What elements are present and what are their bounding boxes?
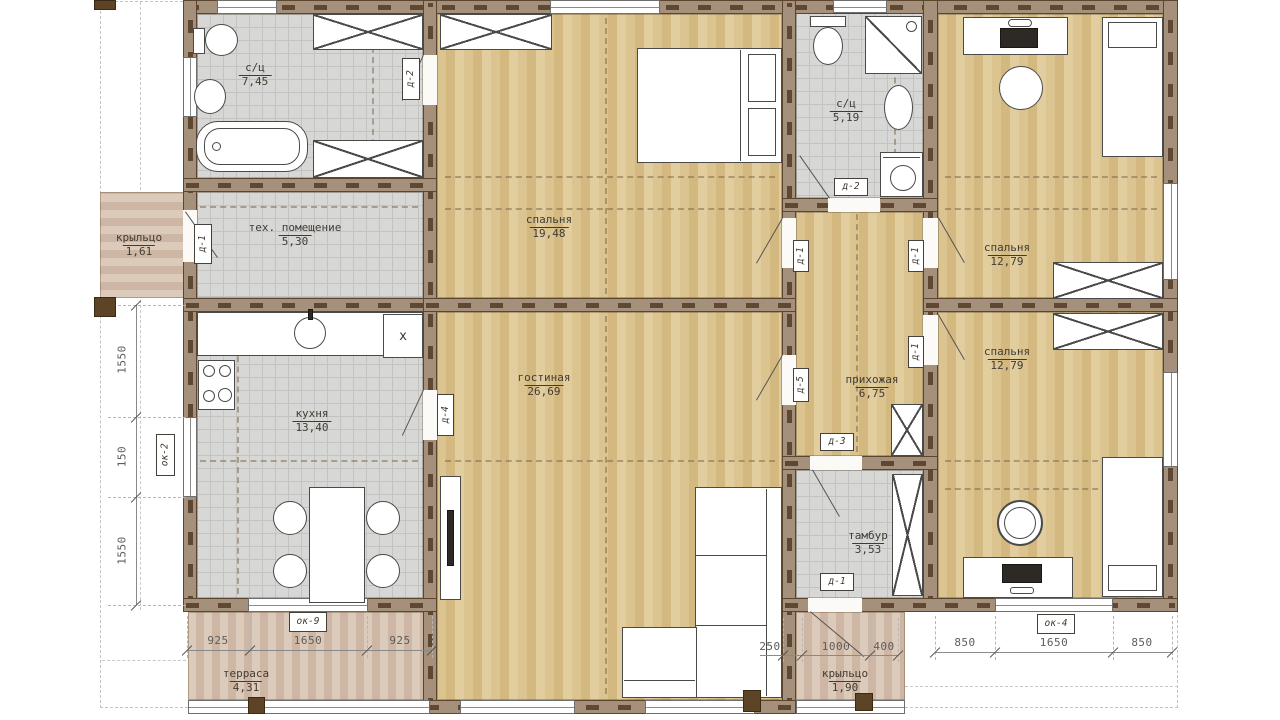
beam-line: [237, 316, 239, 594]
door-tag-d3: д-3: [820, 433, 854, 451]
wall-bedroom-living: [423, 298, 796, 312]
beam-line: [856, 214, 858, 452]
sofa-icon: [695, 487, 782, 698]
chair-icon: [999, 66, 1043, 110]
label-bedroom-main: спальня 19,48: [526, 214, 572, 240]
chair-icon: [273, 501, 307, 535]
dim-ext: [108, 497, 186, 498]
room-area: 5,19: [830, 111, 863, 125]
window: [183, 57, 197, 117]
fridge-icon: x: [383, 314, 423, 358]
room-area: 6,75: [856, 387, 889, 401]
window: [217, 0, 277, 14]
dim-label: 400: [864, 640, 904, 653]
window: [1163, 183, 1178, 280]
wardrobe-icon: [313, 140, 423, 178]
label-terrace: терраса 4,31: [223, 668, 269, 694]
dim-label: 1550: [116, 527, 129, 575]
bed-line: [740, 50, 741, 161]
wardrobe-icon: [891, 404, 923, 456]
post: [94, 0, 116, 10]
beam-line: [605, 316, 607, 694]
sofa-line: [766, 489, 767, 696]
room-name: гостиная: [518, 372, 571, 385]
dim-label: 150: [116, 433, 129, 481]
dim-ext: [108, 605, 186, 606]
door-gap-entry: [808, 598, 862, 612]
door-gap-bedroom-bottom: [923, 315, 938, 365]
door-tag-d5: д-5: [793, 368, 809, 402]
label-bedroom-top: спальня 12,79: [984, 242, 1030, 268]
toilet-icon: [810, 16, 846, 27]
plant-pot-icon: [997, 500, 1043, 546]
closet-icon: [892, 474, 923, 596]
overhang-line: [140, 2, 141, 190]
room-name: кухня: [295, 408, 328, 421]
dim-ext: [432, 616, 433, 658]
beam-line: [200, 206, 418, 208]
sofa-line: [696, 625, 766, 626]
overhang-line: [140, 300, 141, 610]
door-tag-d4: д-4: [437, 394, 454, 436]
room-name: тех. помещение: [249, 222, 342, 235]
dim-ext: [1172, 616, 1173, 660]
room-name: крыльцо: [822, 668, 868, 681]
tap-icon: [308, 309, 313, 320]
room-area: 12,79: [987, 359, 1026, 373]
post: [743, 690, 761, 712]
window: [550, 0, 660, 14]
dim-label: 925: [188, 634, 248, 647]
door-gap-bath2: [828, 198, 880, 212]
sofa-line: [696, 555, 766, 556]
dim-label: 1650: [278, 634, 338, 647]
beam-line: [445, 460, 775, 462]
beam-line: [445, 208, 775, 210]
room-area: 5,30: [279, 235, 312, 249]
label-hallway: прихожая 6,75: [846, 374, 899, 400]
door-tag-d1: д-1: [793, 240, 809, 272]
label-porch-left: крыльцо 1,61: [116, 232, 162, 258]
dim-label: 1000: [816, 640, 856, 653]
burner-icon: [218, 388, 232, 402]
door-tag-d2: д-2: [834, 178, 868, 196]
label-living: гостиная 26,69: [518, 372, 571, 398]
toilet-icon: [193, 28, 205, 54]
window: [645, 700, 755, 714]
chair-icon: [366, 554, 400, 588]
wardrobe-icon: [1053, 262, 1163, 299]
dim-label: 250: [750, 640, 790, 653]
beam-line: [945, 208, 1157, 210]
pillow-icon: [1108, 22, 1157, 48]
room-area: 1,61: [123, 245, 156, 259]
laptop-icon: [1002, 564, 1042, 583]
dim-ext: [250, 616, 251, 658]
sink-icon: [884, 85, 913, 130]
door-tag-d1: д-1: [194, 224, 212, 264]
dim-line-terrace: [187, 650, 432, 651]
printer-lid: [1008, 19, 1032, 27]
door-tag-d1: д-1: [820, 573, 854, 591]
dim-label: 850: [935, 636, 995, 649]
sofa-line: [624, 680, 695, 681]
wardrobe-icon: [1053, 313, 1163, 350]
dim-label: 1650: [1024, 636, 1084, 649]
room-area: 12,79: [987, 255, 1026, 269]
chair-icon: [366, 501, 400, 535]
dim-label: 925: [370, 634, 430, 647]
terrace-edge: [188, 700, 430, 714]
toilet-icon: [205, 24, 238, 56]
wardrobe-icon: [440, 14, 552, 50]
door-tag-d1: д-1: [908, 240, 924, 272]
fridge-label: x: [399, 329, 407, 344]
burner-icon: [219, 365, 231, 377]
wall-top: [183, 0, 1178, 14]
wall-bath1-tech: [183, 178, 437, 192]
room-name: тамбур: [848, 530, 888, 543]
dim-line-right: [935, 652, 1172, 653]
room-name: спальня: [984, 242, 1030, 255]
pillow-icon: [748, 54, 776, 102]
shower-icon: [865, 16, 922, 74]
room-name: крыльцо: [116, 232, 162, 245]
room-name: спальня: [984, 346, 1030, 359]
post: [94, 297, 116, 317]
room-name: терраса: [223, 668, 269, 681]
pillow-icon: [748, 108, 776, 156]
overhang-line: [905, 686, 1178, 687]
label-bedroom-bottom: спальня 12,79: [984, 346, 1030, 372]
burner-icon: [203, 365, 215, 377]
dim-label: 850: [1112, 636, 1172, 649]
window: [1163, 372, 1178, 467]
pillow-icon: [1108, 565, 1157, 591]
label-porch-bottom: крыльцо 1,90: [822, 668, 868, 694]
drain-icon: [212, 142, 221, 151]
window: [833, 0, 887, 13]
dim-line-left: [136, 305, 137, 605]
room-name: с/ц: [245, 62, 265, 75]
burner-icon: [203, 390, 215, 402]
post: [855, 693, 873, 711]
window-ok4: [995, 598, 1113, 612]
tv-icon: [447, 510, 454, 566]
dim-ext: [108, 417, 186, 418]
washing-machine-icon: [880, 152, 923, 197]
dim-ext: [367, 616, 368, 658]
window-tag-ok9: ок-9: [289, 612, 327, 632]
beam-line: [445, 176, 775, 178]
room-area: 4,31: [230, 681, 263, 695]
sofa-icon: [622, 627, 697, 698]
room-area: 19,48: [529, 227, 568, 241]
window: [460, 700, 575, 714]
dim-label: 1550: [116, 336, 129, 384]
door-gap-kitchen: [423, 390, 437, 440]
toilet-icon: [813, 27, 843, 65]
overhang-line: [102, 660, 186, 661]
room-area: 7,45: [239, 75, 272, 89]
chair-icon: [273, 554, 307, 588]
label-bath1: с/ц 7,45: [239, 62, 272, 88]
dim-ext: [995, 616, 996, 660]
door-gap-tambour: [810, 456, 862, 470]
door-gap-bedroom-top: [923, 218, 938, 268]
room-area: 3,53: [852, 543, 885, 557]
beam-line: [605, 18, 607, 294]
room-name: спальня: [526, 214, 572, 227]
dining-table-icon: [309, 487, 365, 603]
beam-line: [945, 176, 1157, 178]
room-area: 26,69: [524, 385, 563, 399]
window-ok2: [183, 417, 197, 497]
door-gap-bath1: [423, 55, 437, 105]
floor-plan: x с/ц 7,45 тех. помещение 5,30 кухня: [0, 0, 1280, 720]
room-name: прихожая: [846, 374, 899, 387]
wall-bedrooms-right: [923, 298, 1178, 312]
label-bath2: с/ц 5,19: [830, 98, 863, 124]
beam-line: [200, 460, 418, 462]
window-tag-ok2: ок-2: [156, 434, 175, 476]
kitchen-sink-icon: [294, 317, 326, 349]
room-name: с/ц: [836, 98, 856, 111]
room-area: 13,40: [292, 421, 331, 435]
label-tambour: тамбур 3,53: [848, 530, 888, 556]
door-tag-d1: д-1: [908, 336, 924, 368]
sink-icon: [194, 79, 226, 114]
window-tag-ok4: ок-4: [1037, 614, 1075, 634]
printer-icon: [1000, 28, 1038, 48]
label-tech: тех. помещение 5,30: [249, 222, 342, 248]
wardrobe-icon: [313, 14, 423, 50]
dim-ext: [108, 305, 186, 306]
mouse-icon: [1010, 587, 1034, 594]
label-kitchen: кухня 13,40: [292, 408, 331, 434]
porch-edge: [796, 700, 905, 714]
door-tag-d2: д-2: [402, 58, 420, 100]
room-area: 1,90: [829, 681, 862, 695]
post: [248, 697, 265, 714]
